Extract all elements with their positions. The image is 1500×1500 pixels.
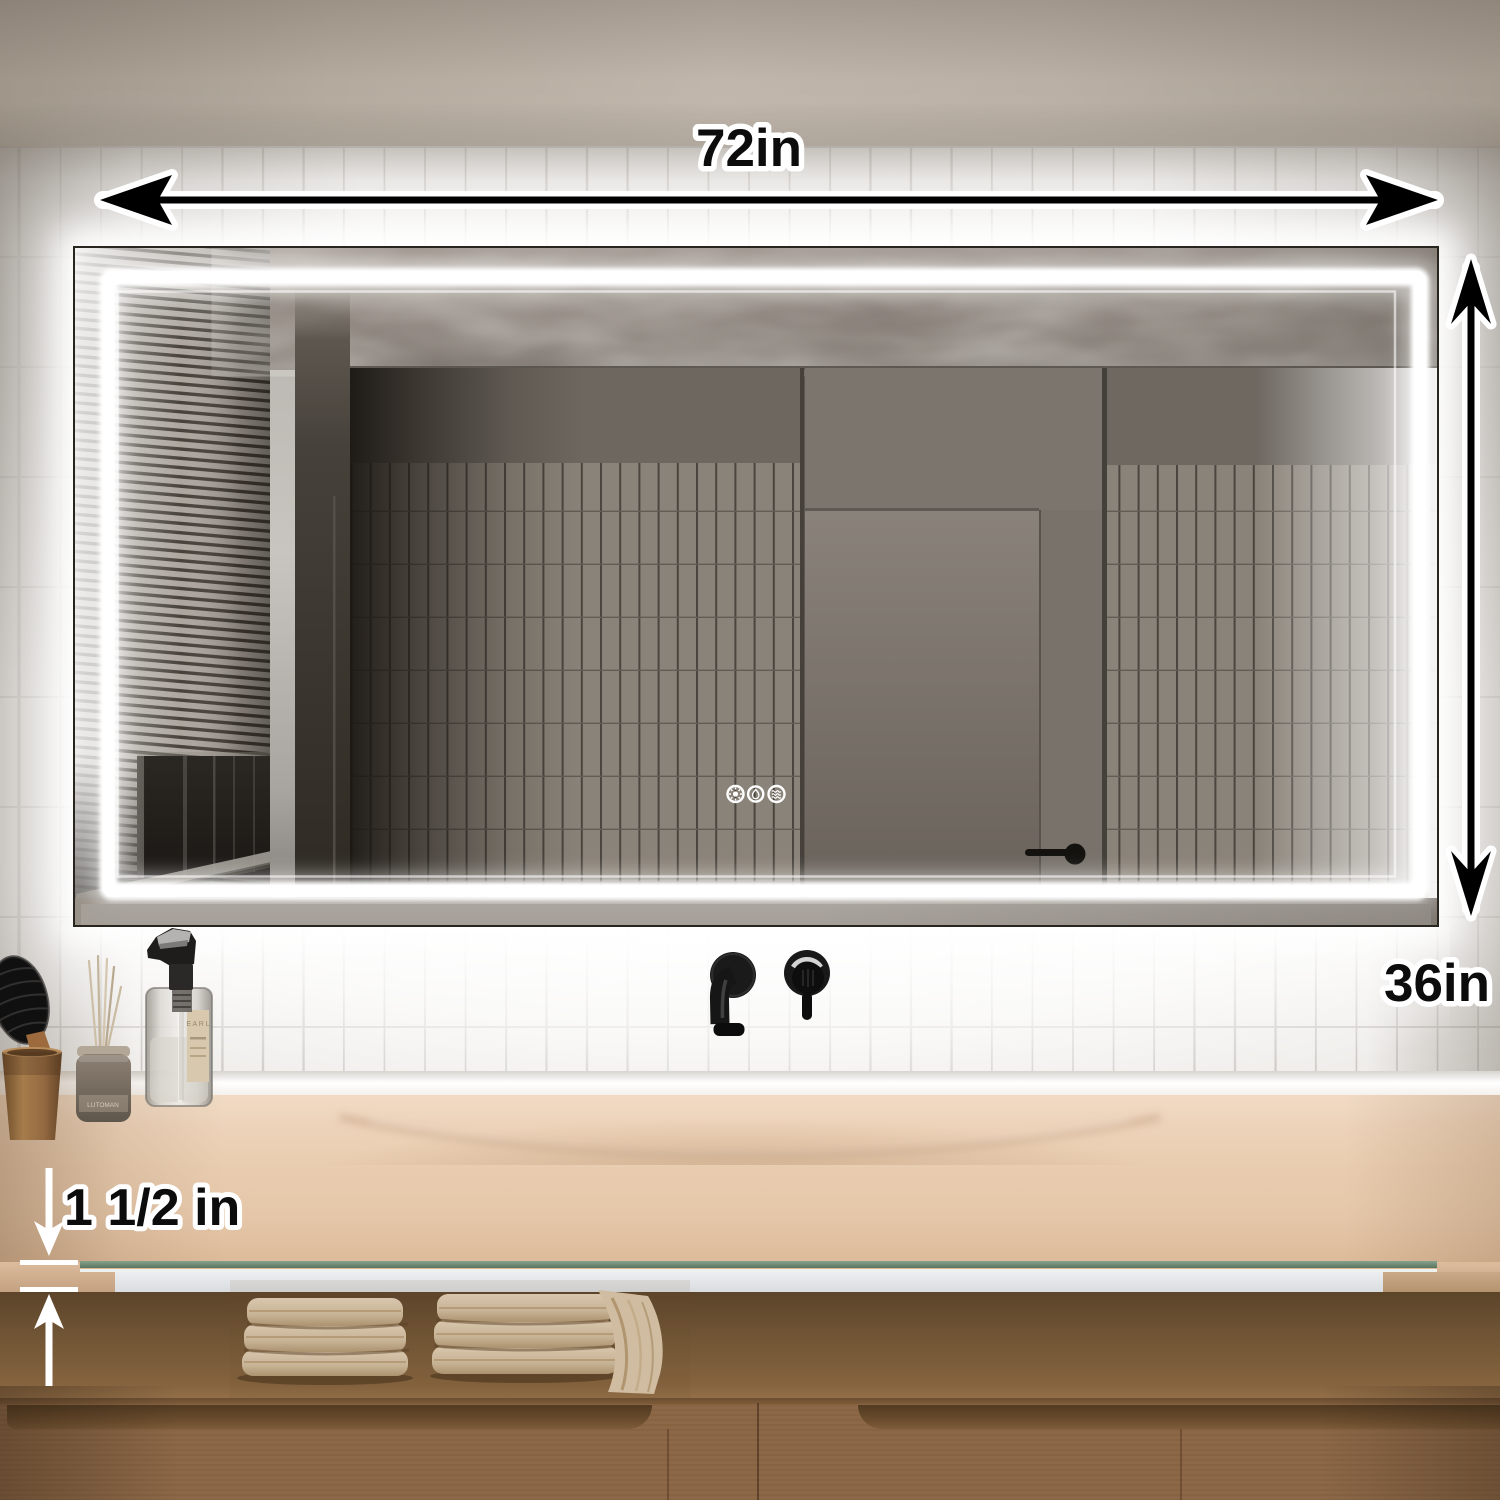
- svg-text:1 1/2 in: 1 1/2 in: [64, 1179, 240, 1237]
- svg-text:36in: 36in: [1384, 954, 1490, 1013]
- svg-text:72in: 72in: [696, 119, 802, 178]
